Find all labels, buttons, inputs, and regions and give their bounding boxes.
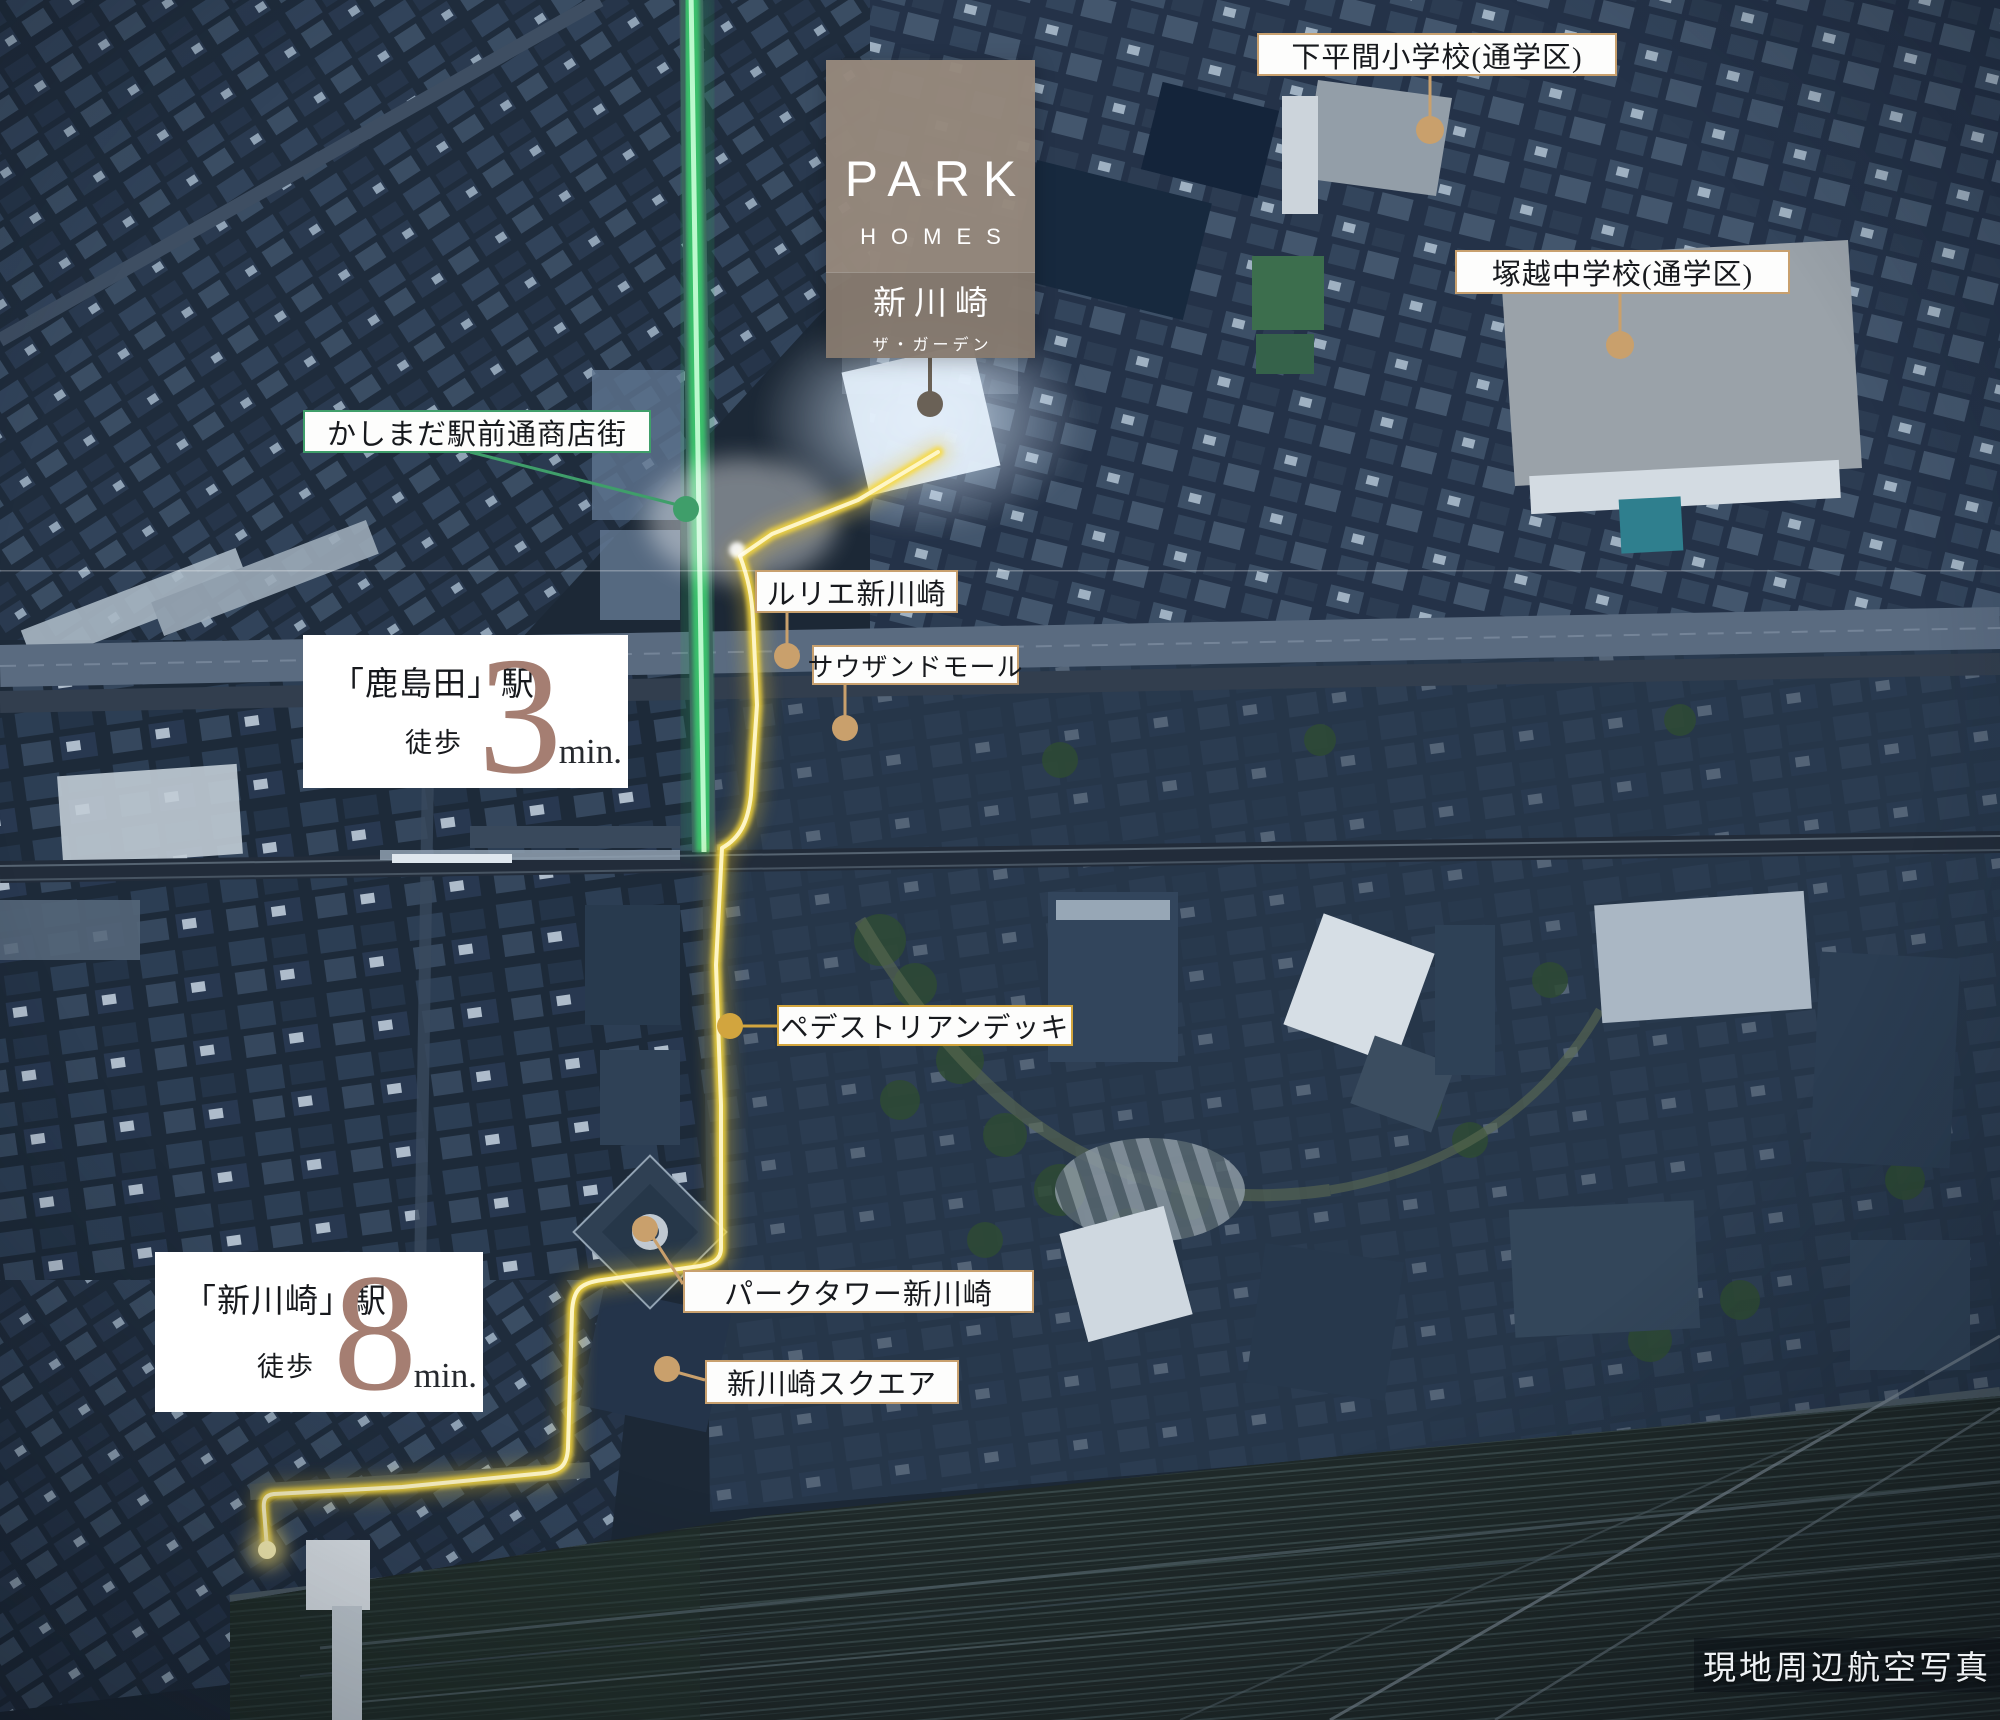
logo-brand-text: PARK bbox=[845, 150, 1029, 208]
label-lurie-shinkawasaki: ルリエ新川崎 bbox=[755, 570, 958, 613]
thousand-mall-pin-icon bbox=[832, 715, 858, 741]
shinkawasaki-minutes: 8 bbox=[333, 1254, 417, 1414]
photo-caption: 現地周辺航空写真 bbox=[1694, 1638, 2000, 1692]
junior-high-pin-icon bbox=[1606, 331, 1634, 359]
kashimada-walk-label: 徒歩 bbox=[405, 721, 463, 760]
label-thousand-mall: サウザンドモール bbox=[812, 645, 1019, 685]
shinkawasaki-walk-label: 徒歩 bbox=[257, 1345, 315, 1384]
property-logo: PARK HOMES 新川崎 ザ・ガーデン bbox=[826, 60, 1035, 357]
label-pedestrian-deck: ペデストリアンデッキ bbox=[777, 1005, 1073, 1046]
shinkawasaki-walktime-card: 「新川崎」駅 徒歩 8 min. bbox=[155, 1252, 483, 1412]
kashimada-walktime-card: 「鹿島田」駅 徒歩 3 min. bbox=[303, 635, 628, 788]
label-junior-high-school: 塚越中学校(通学区) bbox=[1455, 250, 1790, 294]
label-elementary-school: 下平間小学校(通学区) bbox=[1257, 33, 1617, 76]
shinkawasaki-minutes-unit: min. bbox=[414, 1356, 477, 1396]
label-shinkawasaki-square: 新川崎スクエア bbox=[705, 1360, 959, 1404]
logo-property-sub: ザ・ガーデン bbox=[872, 331, 992, 355]
logo-property-name: 新川崎 bbox=[873, 276, 996, 324]
logo-brand-block: PARK HOMES bbox=[826, 60, 1035, 272]
site-pin-icon bbox=[917, 391, 943, 417]
kashimada-minutes-unit: min. bbox=[559, 732, 622, 772]
lurie-pin-icon bbox=[774, 643, 800, 669]
label-shopping-street: かしまだ駅前通商店街 bbox=[303, 410, 651, 453]
shopping-street-pin-icon bbox=[673, 496, 699, 522]
label-park-tower: パークタワー新川崎 bbox=[683, 1270, 1034, 1313]
logo-brand-sub-text: HOMES bbox=[860, 224, 1016, 250]
pedestrian-deck-pin-icon bbox=[717, 1013, 743, 1039]
park-tower-pin-icon bbox=[632, 1216, 658, 1242]
logo-property-block: 新川崎 ザ・ガーデン bbox=[826, 272, 1035, 358]
kashimada-minutes: 3 bbox=[478, 637, 562, 797]
square-pin-icon bbox=[654, 1356, 680, 1382]
aerial-map-page: PARK HOMES 新川崎 ザ・ガーデン 下平間小学校(通学区) 塚越中学校(… bbox=[0, 0, 2000, 1720]
elementary-school-pin-icon bbox=[1416, 116, 1444, 144]
